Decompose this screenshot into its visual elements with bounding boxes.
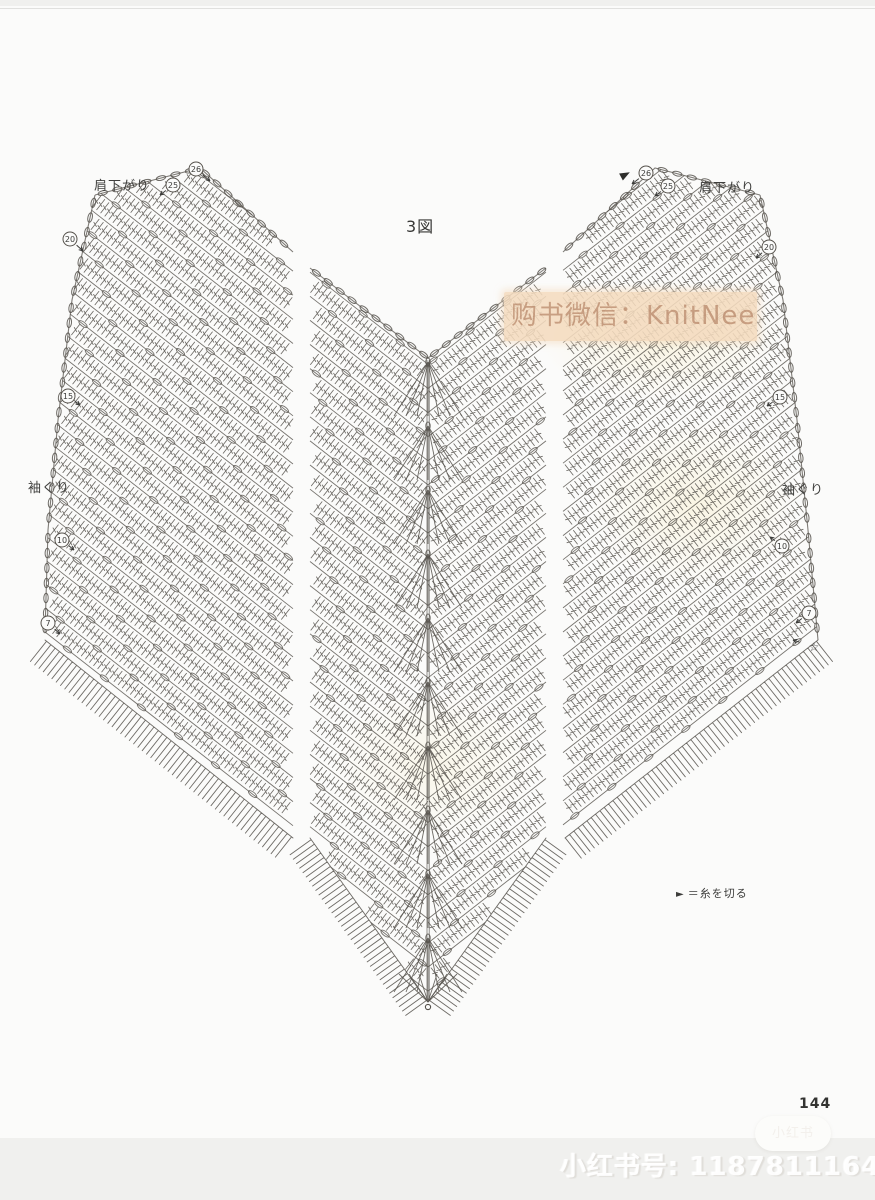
- svg-text:26: 26: [191, 165, 201, 174]
- star-marker: ☆: [793, 639, 819, 654]
- cut-yarn-arrow-icon: ►: [676, 889, 685, 900]
- row-marker-7: 7: [41, 616, 60, 634]
- svg-text:25: 25: [168, 181, 178, 190]
- svg-text:7: 7: [806, 609, 811, 618]
- svg-text:10: 10: [57, 536, 67, 545]
- svg-text:25: 25: [663, 182, 673, 191]
- svg-text:20: 20: [764, 243, 774, 252]
- shoulder-slope-label-left: 肩下がり: [94, 175, 150, 194]
- svg-text:☆: ☆: [809, 640, 820, 654]
- figure-label: 3図: [406, 213, 434, 237]
- row-marker-20: 20: [63, 232, 83, 251]
- svg-text:15: 15: [63, 392, 73, 401]
- row-marker-25: 25: [160, 178, 180, 195]
- row-marker-26: 26: [632, 166, 653, 184]
- armhole-label-left: 袖ぐり: [28, 477, 70, 496]
- svg-text:7: 7: [45, 619, 50, 628]
- svg-text:10: 10: [777, 542, 787, 551]
- svg-text:15: 15: [775, 393, 785, 402]
- shoulder-slope-label-right: 肩下がり: [699, 177, 755, 196]
- svg-text:26: 26: [641, 169, 651, 178]
- row-marker-10: 10: [55, 533, 74, 550]
- page-number: 144: [799, 1096, 831, 1112]
- purchase-watermark: 购书微信：KnitNeedle: [504, 292, 757, 341]
- cut-yarn-legend-text: ＝糸を切る: [688, 887, 748, 900]
- scanned-book-page: { "page": { "figure_label": "3図", "page_…: [0, 0, 875, 1200]
- row-marker-25: 25: [655, 179, 675, 196]
- cut-yarn-legend: ►＝糸を切る: [676, 885, 748, 901]
- xiaohongshu-id-watermark: 小红书号: 1187811164: [560, 1146, 870, 1183]
- cut-yarn-marker: [619, 169, 632, 181]
- svg-text:20: 20: [65, 235, 75, 244]
- armhole-label-right: 袖ぐり: [782, 479, 824, 498]
